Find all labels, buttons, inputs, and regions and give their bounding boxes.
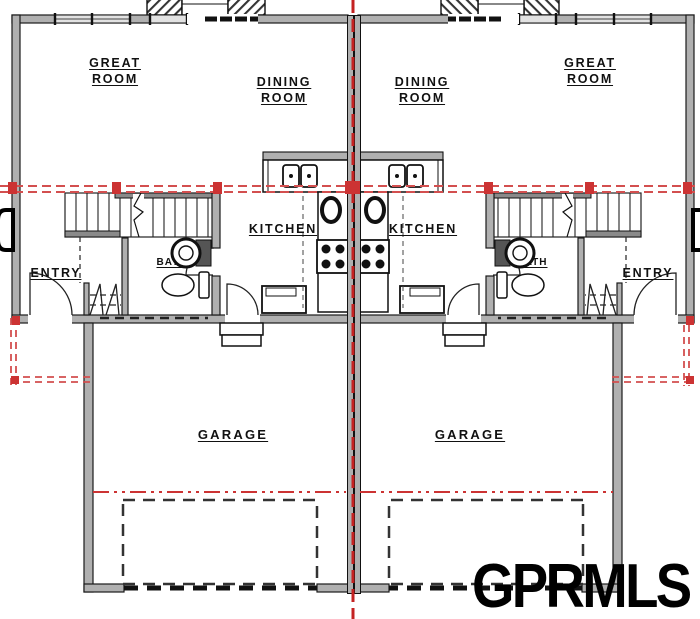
prep-sink (322, 198, 340, 222)
utility-meter (0, 210, 13, 250)
room-label-great-room-right: GREATROOM (564, 55, 616, 88)
garage-door-track-dashed (123, 500, 317, 584)
room-label-entry-left: ENTRY (31, 265, 82, 281)
room-label-garage-right: GARAGE (435, 427, 505, 444)
toilet-bowl (162, 274, 194, 296)
room-label-dining-room-right: DININGROOM (395, 74, 450, 107)
rear-deck (147, 0, 265, 15)
room-label-kitchen-left: KITCHEN (249, 221, 317, 237)
closet-bifold-doors (90, 284, 121, 315)
garage-entry-door-swing (227, 284, 258, 315)
room-label-garage-left: GARAGE (198, 427, 268, 444)
garage-entry-steps (220, 323, 263, 335)
room-label-great-room-left: GREATROOM (89, 55, 141, 88)
garage (84, 323, 352, 592)
party-wall-left-leaf (347, 15, 354, 594)
refrigerator (262, 286, 306, 313)
toilet-tank (199, 272, 209, 298)
front-door-opening (28, 314, 72, 324)
room-label-kitchen-right: KITCHEN (389, 221, 457, 237)
doors (30, 248, 258, 315)
party-wall-right-leaf (354, 15, 361, 594)
stairs (65, 193, 218, 283)
rear-windows (55, 13, 258, 25)
floor-plan: GREATROOM DININGROOM DININGROOM GREATROO… (0, 0, 700, 619)
room-label-entry-right: ENTRY (623, 265, 674, 281)
bath-sink (172, 239, 200, 267)
stove (317, 240, 348, 273)
room-label-dining-room-left: DININGROOM (257, 74, 312, 107)
mls-watermark: GPRMLS (472, 556, 690, 618)
